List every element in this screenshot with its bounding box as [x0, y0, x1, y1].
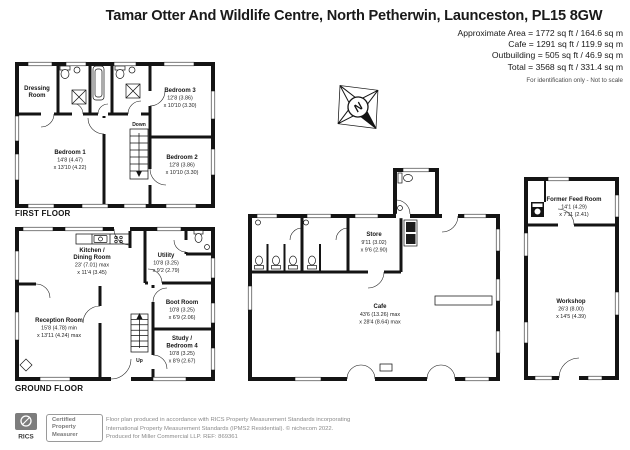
area-line-cafe: Cafe = 1291 sq ft / 119.9 sq m: [457, 39, 623, 50]
study-dim1: 10'8 (3.25): [169, 351, 195, 357]
shower-icon: [72, 90, 86, 104]
bedroom2-label: Bedroom 2: [166, 155, 198, 161]
kitchen-dim1: 23' (7.01) max: [75, 263, 110, 269]
badge-line2: Property: [52, 424, 102, 431]
toilet-icon: [194, 231, 203, 243]
cafe-label: Cafe: [373, 304, 387, 310]
first-floor-caption: FIRST FLOOR: [15, 209, 71, 218]
bedroom2-dim1: 12'8 (3.86): [169, 163, 195, 169]
cafe-plan: Store 9'11 (3.02) x 9'6 (2.90) Cafe 43'6…: [246, 166, 502, 386]
sink-unit-icon: [531, 202, 544, 217]
rics-logo: RICS: [12, 412, 42, 442]
utility-label: Utility: [158, 253, 175, 259]
reception-dim2: x 13'11 (4.24) max: [37, 333, 81, 339]
workshop-dim1: 26'3 (8.00): [558, 307, 584, 313]
stairs-up-label: Up: [136, 358, 143, 364]
cafe-walls: [250, 170, 498, 379]
footer-line1: Floor plan produced in accordance with R…: [106, 416, 376, 425]
reception-dim1: 15'8 (4.78) min: [41, 326, 77, 332]
bathtub-icon: [93, 66, 104, 100]
cafe-dim2: x 28'4 (8.64) max: [359, 320, 401, 326]
study-label: Study /: [172, 336, 192, 342]
compass-icon: N: [324, 75, 392, 139]
bedroom3-dim1: 12'8 (3.86): [167, 96, 193, 102]
boot-room-dim1: 10'8 (3.25): [169, 308, 195, 314]
feed-room-dim2: x 7'11 (2.41): [559, 212, 589, 218]
kitchen-label: Kitchen /: [79, 248, 105, 254]
workshop-label: Workshop: [556, 299, 586, 305]
footer-disclaimer: Floor plan produced in accordance with R…: [106, 416, 376, 442]
fridge-icon: [404, 220, 417, 246]
badge-line1: Certified: [52, 417, 102, 424]
kitchen-label2: Dining Room: [73, 255, 110, 261]
dressing-room-label: Dressing: [24, 86, 50, 92]
rics-label: RICS: [18, 434, 34, 441]
bedroom3-dim2: x 10'10 (3.30): [164, 103, 197, 109]
area-line-outbuilding: Outbuilding = 505 sq ft / 46.9 sq m: [457, 50, 623, 61]
bedroom3-label: Bedroom 3: [164, 88, 196, 94]
store-dim2: x 9'6 (2.90): [361, 248, 388, 254]
study-dim2: x 8'9 (2.67): [169, 359, 196, 365]
floorplan-page: Tamar Otter And Wildlife Centre, North P…: [0, 0, 630, 450]
feed-room-label: Former Feed Room: [546, 197, 601, 203]
area-line-approx: Approximate Area = 1772 sq ft / 164.6 sq…: [457, 28, 623, 39]
workshop-dim2: x 14'5 (4.39): [556, 314, 586, 320]
toilet-icon: [60, 66, 70, 79]
bedroom1-label: Bedroom 1: [54, 150, 86, 156]
utility-dim2: x 9'2 (2.79): [153, 268, 180, 274]
ground-floor-caption: GROUND FLOOR: [15, 384, 83, 393]
sink-icon: [74, 67, 80, 73]
footer-line3: Produced for Miller Commercial LLP. REF:…: [106, 433, 376, 442]
area-line-total: Total = 3568 sq ft / 331.4 sq m: [457, 62, 623, 73]
page-title: Tamar Otter And Wildlife Centre, North P…: [80, 8, 628, 24]
kitchen-dim2: x 11'4 (3.45): [77, 270, 107, 276]
sink-icon: [398, 206, 403, 211]
toilet-icon: [255, 256, 264, 269]
ground-floor-plan: Kitchen / Dining Room 23' (7.01) max x 1…: [14, 226, 216, 386]
bedroom1-dim2: x 13'10 (4.22): [54, 165, 87, 171]
sink-icon: [256, 220, 261, 225]
toilet-icon: [115, 66, 125, 79]
outbuilding-plan: Former Feed Room 14'1 (4.29) x 7'11 (2.4…: [522, 176, 624, 382]
reception-label: Reception Room: [35, 318, 83, 324]
toilet-icon: [272, 256, 281, 269]
toilet-icon: [289, 256, 298, 269]
store-label: Store: [366, 232, 382, 238]
sink-icon: [205, 245, 210, 250]
toilet-icon: [308, 256, 317, 269]
study-label2: Bedroom 4: [166, 344, 198, 350]
bedroom1-dim1: 14'8 (4.47): [57, 158, 83, 164]
sink-icon: [304, 220, 309, 225]
first-floor-plan: Dressing Room Bedroom 3 12'8 (3.86) x 10…: [14, 61, 216, 209]
scale-note: For identification only - Not to scale: [457, 75, 623, 86]
stairs-down-label: Down: [132, 122, 146, 128]
cafe-dim1: 43'6 (13.26) max: [360, 312, 401, 318]
kitchen-sink-icon: [94, 236, 107, 243]
badge-line3: Measurer: [52, 432, 102, 439]
boot-room-dim2: x 6'9 (2.06): [169, 315, 196, 321]
sink-icon: [129, 67, 135, 73]
boot-room-label: Boot Room: [166, 300, 198, 306]
store-dim1: 9'11 (3.02): [361, 240, 386, 246]
bedroom2-dim2: x 10'10 (3.30): [166, 170, 199, 176]
certified-measurer-badge: Certified Property Measurer: [46, 414, 103, 442]
footer-line2: International Property Measurement Stand…: [106, 425, 376, 434]
area-summary: Approximate Area = 1772 sq ft / 164.6 sq…: [457, 28, 623, 86]
shower-icon: [126, 84, 140, 98]
feed-room-dim1: 14'1 (4.29): [561, 205, 587, 211]
dressing-room-label2: Room: [29, 93, 46, 99]
utility-dim1: 10'8 (3.25): [153, 261, 179, 267]
